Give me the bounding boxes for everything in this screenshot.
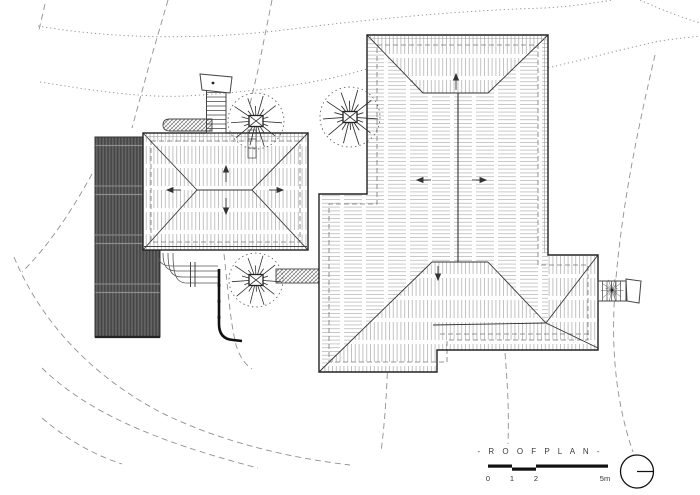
scale-label-2: 2 (534, 474, 538, 483)
north-arrow-icon (621, 455, 654, 488)
scale-label-5m: 5m (600, 474, 610, 483)
walkway-north (163, 119, 212, 131)
external-stair-east (598, 279, 641, 303)
roof-plan-drawing: - R O O F P L A N - 0 1 2 5m (0, 0, 700, 495)
retaining-wall-edge (219, 269, 242, 341)
scale-label-0: 0 (486, 474, 490, 483)
tree (229, 253, 283, 307)
scale-bar: 0 1 2 5m (486, 465, 610, 484)
garden-path-lines (158, 253, 242, 341)
roof-plan-sheet: - R O O F P L A N - 0 1 2 5m (0, 0, 700, 495)
drawing-title: - R O O F P L A N - (477, 447, 602, 456)
left-building-roof (143, 133, 308, 250)
right-building-roof (319, 35, 598, 372)
scale-label-1: 1 (510, 474, 514, 483)
